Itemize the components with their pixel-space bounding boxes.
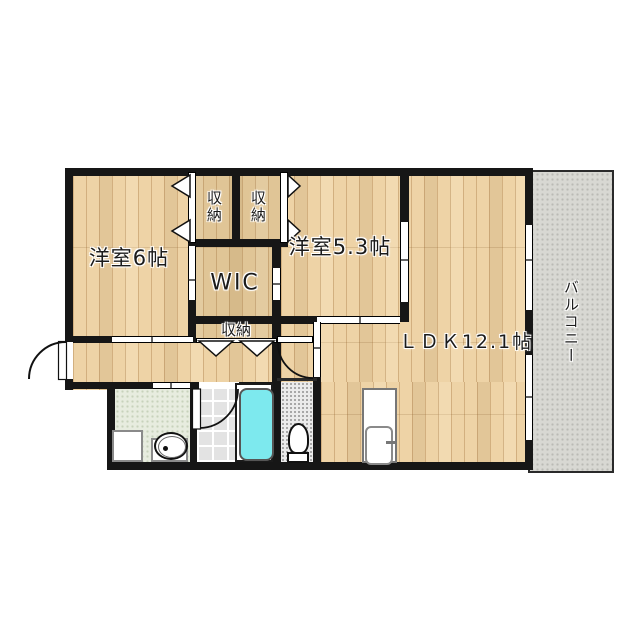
- floor-ldk-bottom: [321, 382, 525, 462]
- bedroom53-label: 洋室5.3帖: [289, 236, 391, 258]
- window-ldk-1: [525, 225, 533, 310]
- balcony-label: バルコニー: [562, 280, 578, 365]
- wall-closethall-top: [188, 316, 317, 324]
- floorplan-canvas: 洋室6帖 洋室5.3帖 WIC ＬＤＫ12.1帖 収納 収納 収納 バルコニー: [0, 0, 640, 640]
- hall-ldk-opening: [313, 322, 321, 377]
- ldk-label: ＬＤＫ12.1帖: [399, 333, 533, 353]
- washbasin-faucet-dot: [163, 446, 168, 451]
- wall-closet-divider: [232, 176, 240, 243]
- wic-label: WIC: [210, 271, 260, 294]
- closet-top-left-door-band: [188, 172, 196, 243]
- bedroom6-label: 洋室6帖: [89, 247, 169, 269]
- wall-toilet-top-line: [277, 378, 317, 381]
- closet-top-right-door-band: [280, 172, 288, 243]
- toilet-bowl: [288, 423, 309, 454]
- wall-toilet-right: [313, 377, 321, 462]
- kitchen-faucet: [386, 441, 396, 444]
- bedroom6-sliding-door: [112, 336, 193, 343]
- closet-top-left-label: 収納: [205, 190, 221, 224]
- bathtub: [239, 388, 274, 461]
- closet-top-right-label: 収納: [249, 190, 265, 224]
- bathroom-door-opening: [199, 382, 239, 389]
- wic-opening-left: [188, 246, 196, 300]
- closet-hall-label: 収納: [221, 323, 251, 339]
- wall-bottom: [107, 462, 533, 470]
- wall-closets-bottom: [188, 239, 288, 247]
- bedroom53-ldk-door: [400, 222, 409, 302]
- entrance-opening: [65, 342, 73, 379]
- window-ldk-2: [525, 355, 533, 440]
- washroom-sliding-door: [153, 382, 190, 389]
- wall-top: [65, 168, 533, 176]
- wic-opening-right: [272, 268, 281, 300]
- entrance-door-arc: [29, 342, 66, 379]
- bedroom53-sliding-door: [317, 316, 400, 324]
- floor-main: [73, 176, 525, 390]
- toilet-door-band: [277, 336, 313, 343]
- kitchen-sink: [365, 426, 393, 465]
- toilet-base: [287, 452, 309, 463]
- washing-machine-pan: [112, 430, 143, 462]
- wall-washroom-bathroom: [190, 389, 197, 462]
